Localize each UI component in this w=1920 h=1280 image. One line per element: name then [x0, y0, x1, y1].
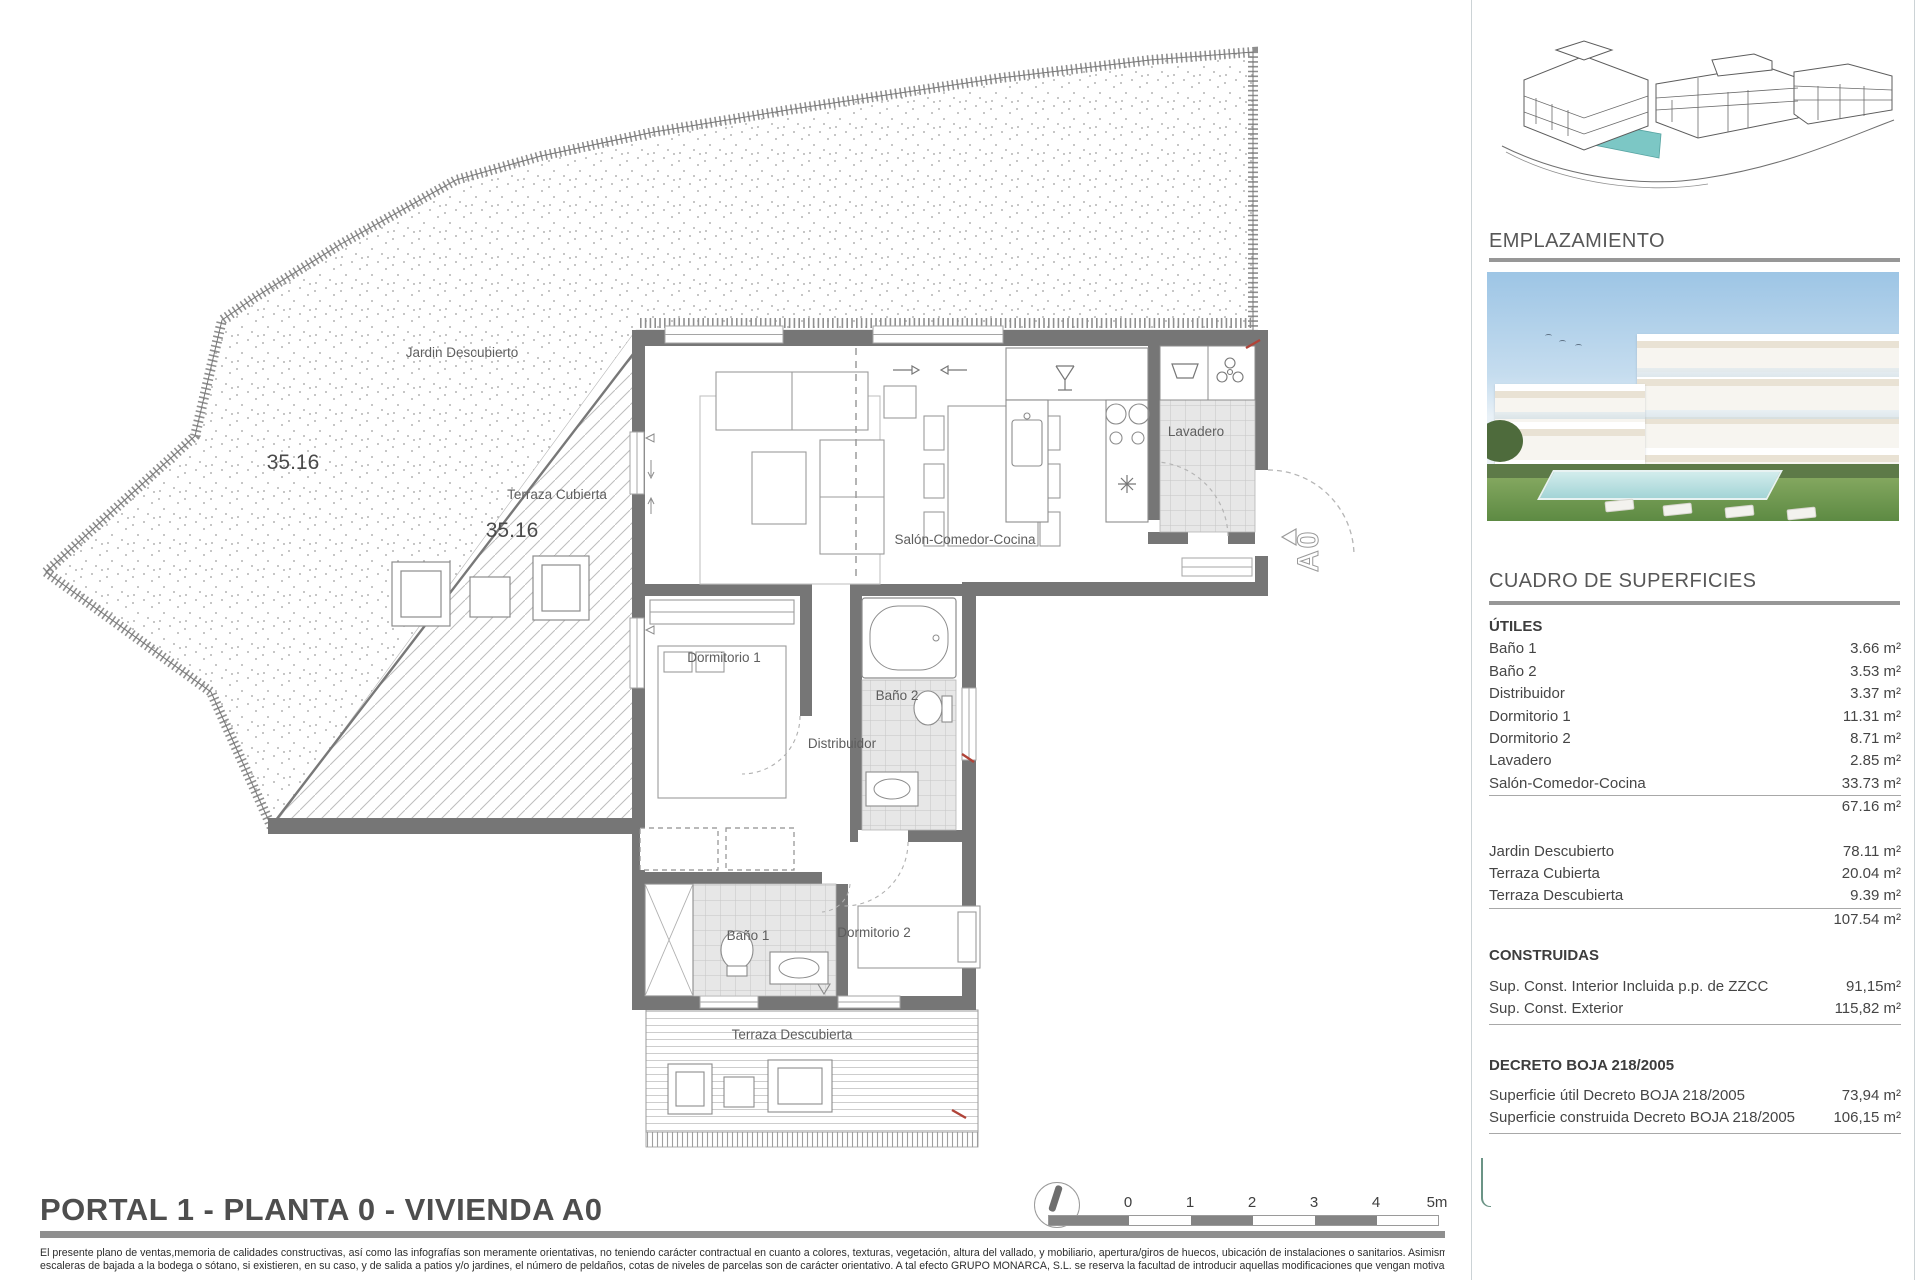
row-value: 20.04 m² — [1842, 863, 1901, 885]
row-label: Lavadero — [1489, 750, 1552, 772]
label-dormitorio-1: Dormitorio 1 — [687, 650, 761, 665]
floorplan-page: { "plan": { "title": "PORTAL 1 - PLANTA … — [0, 0, 1920, 1280]
scale-tick-5: 5m — [1427, 1194, 1448, 1211]
scale-seg — [1049, 1216, 1129, 1225]
row-label: Baño 1 — [1489, 638, 1537, 660]
label-jardin-area: 35.16 — [267, 451, 320, 474]
label-terraza-cubierta-area: 35.16 — [486, 519, 539, 542]
table-row: Salón-Comedor-Cocina33.73 m² — [1489, 773, 1901, 795]
bird-icon — [1545, 334, 1552, 338]
total-value: 107.54 m² — [1833, 909, 1901, 931]
row-label: Dormitorio 2 — [1489, 728, 1571, 750]
cuadro-underline — [1489, 601, 1900, 605]
scale-tick-4: 4 — [1372, 1194, 1380, 1211]
label-dormitorio-2: Dormitorio 2 — [837, 925, 911, 940]
bird-icon — [1575, 344, 1582, 348]
row-value: 78.11 m² — [1843, 841, 1901, 863]
decreto-heading: DECRETO BOJA 218/2005 — [1489, 1055, 1901, 1077]
scale-tick-2: 2 — [1248, 1194, 1256, 1211]
sidebar: EMPLAZAMIENTO CUADRO DE SUPERFICIES ÚTIL… — [1472, 0, 1914, 1280]
wardrobes — [640, 828, 794, 870]
emplazamiento-heading: EMPLAZAMIENTO — [1489, 230, 1665, 253]
page-edge-line — [1914, 0, 1915, 1280]
row-value: 115,82 m² — [1835, 998, 1901, 1020]
exterior-total-row: 107.54 m² — [1489, 908, 1901, 931]
bird-icon — [1559, 340, 1566, 344]
row-value: 11.31 m² — [1843, 706, 1901, 728]
row-value: 3.53 m² — [1850, 661, 1901, 683]
label-terraza-descubierta: Terraza Descubierta — [732, 1027, 853, 1042]
row-value: 73,94 m² — [1842, 1085, 1901, 1107]
table-row: Lavadero2.85 m² — [1489, 750, 1901, 772]
row-value: 9.39 m² — [1850, 885, 1901, 907]
row-value: 3.66 m² — [1850, 638, 1901, 660]
scale-tick-1: 1 — [1186, 1194, 1194, 1211]
row-label: Terraza Cubierta — [1489, 863, 1600, 885]
row-value: 3.37 m² — [1850, 683, 1901, 705]
balcony-glass — [1637, 410, 1899, 419]
scale-seg — [1253, 1216, 1315, 1225]
utiles-total-row: 67.16 m² — [1489, 795, 1901, 818]
row-label: Distribuidor — [1489, 683, 1565, 705]
row-label: Sup. Const. Exterior — [1489, 998, 1623, 1020]
disclaimer-line-1: El presente plano de ventas,memoria de c… — [40, 1247, 1445, 1260]
building-photo — [1487, 272, 1899, 521]
table-row: Dormitorio 111.31 m² — [1489, 706, 1901, 728]
scale-seg — [1377, 1216, 1438, 1225]
table-row: Superficie construida Decreto BOJA 218/2… — [1489, 1107, 1901, 1133]
total-value: 67.16 m² — [1842, 796, 1901, 818]
row-label: Jardin Descubierto — [1489, 841, 1614, 863]
table-row: Terraza Descubierta9.39 m² — [1489, 885, 1901, 907]
row-label: Dormitorio 1 — [1489, 706, 1571, 728]
scale-seg — [1191, 1216, 1253, 1225]
row-label: Superficie útil Decreto BOJA 218/2005 — [1489, 1085, 1745, 1107]
living-room-furniture — [700, 372, 916, 584]
label-jardin: Jardin Descubierto — [406, 345, 519, 360]
unit-label: A0 — [1292, 530, 1325, 572]
table-row: Baño 13.66 m² — [1489, 638, 1901, 660]
row-value: 8.71 m² — [1850, 728, 1901, 750]
label-lavadero: Lavadero — [1168, 424, 1224, 439]
pool — [1537, 470, 1783, 500]
site-sketch — [1496, 26, 1900, 214]
label-terraza-cubierta: Terraza Cubierta — [507, 487, 607, 502]
row-label: Baño 2 — [1489, 661, 1537, 683]
construidas-heading: CONSTRUIDAS — [1489, 945, 1901, 967]
surfaces-table: ÚTILES Baño 13.66 m² Baño 23.53 m² Distr… — [1489, 616, 1901, 1134]
disclaimer-line-2: escaleras de bajada a la bodega o sótano… — [40, 1260, 1445, 1273]
emplazamiento-underline — [1489, 258, 1900, 262]
row-value: 91,15m² — [1846, 976, 1901, 998]
cuadro-heading: CUADRO DE SUPERFICIES — [1489, 570, 1756, 593]
row-label: Sup. Const. Interior Incluida p.p. de ZZ… — [1489, 976, 1768, 998]
row-label: Terraza Descubierta — [1489, 885, 1623, 907]
table-row: Superficie útil Decreto BOJA 218/200573,… — [1489, 1085, 1901, 1107]
scale-seg — [1129, 1216, 1191, 1225]
row-value: 106,15 m² — [1833, 1107, 1901, 1129]
balcony-glass — [1495, 412, 1645, 419]
balcony-glass — [1637, 368, 1899, 377]
label-bano-2: Baño 2 — [876, 688, 919, 703]
scale-tick-3: 3 — [1310, 1194, 1318, 1211]
row-label: Superficie construida Decreto BOJA 218/2… — [1489, 1107, 1795, 1129]
laundry-room — [1158, 346, 1255, 536]
table-row: Baño 23.53 m² — [1489, 661, 1901, 683]
table-row: Distribuidor3.37 m² — [1489, 683, 1901, 705]
table-row: Sup. Const. Interior Incluida p.p. de ZZ… — [1489, 976, 1901, 998]
utiles-heading: ÚTILES — [1489, 616, 1901, 638]
row-label: Salón-Comedor-Cocina — [1489, 773, 1646, 795]
table-row: Terraza Cubierta20.04 m² — [1489, 863, 1901, 885]
label-bano-1: Baño 1 — [727, 928, 770, 943]
scale-bar — [1048, 1215, 1439, 1226]
row-value: 33.73 m² — [1842, 773, 1901, 795]
corner-mark — [1481, 1158, 1491, 1207]
row-value: 2.85 m² — [1850, 750, 1901, 772]
table-row: Jardin Descubierto78.11 m² — [1489, 841, 1901, 863]
scale-tick-0: 0 — [1124, 1194, 1132, 1211]
bathroom-2 — [862, 598, 956, 830]
label-distribuidor: Distribuidor — [808, 736, 877, 751]
building-right — [1637, 334, 1899, 467]
table-row: Dormitorio 28.71 m² — [1489, 728, 1901, 750]
title-underline — [40, 1231, 1445, 1238]
scale-seg — [1315, 1216, 1377, 1225]
table-row: Sup. Const. Exterior115,82 m² — [1489, 998, 1901, 1024]
label-salon: Salón-Comedor-Cocina — [894, 532, 1036, 547]
floor-plan: A0 — [0, 0, 1471, 1280]
page-title: PORTAL 1 - PLANTA 0 - VIVIENDA A0 — [40, 1192, 603, 1228]
